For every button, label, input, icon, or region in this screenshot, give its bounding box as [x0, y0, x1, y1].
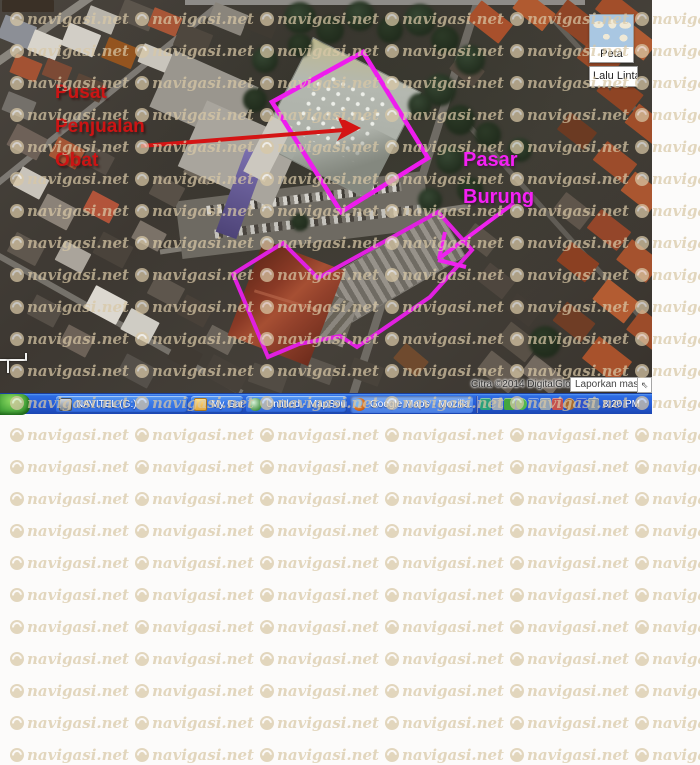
watermark: navigasi.net [385, 618, 504, 636]
watermark: navigasi.net [10, 650, 129, 668]
watermark: navigasi.net [10, 586, 129, 604]
taskbar-button-navitel[interactable]: NAVITEL (G:) [56, 396, 188, 413]
tray-icon-10[interactable] [588, 398, 599, 410]
watermark-logo-icon [385, 460, 399, 474]
watermark: navigasi.net [260, 522, 379, 540]
screenshot-region: Pusat Penjualan Obat Pasar Burung Peta L… [0, 0, 652, 414]
watermark-logo-icon [510, 620, 524, 634]
start-button[interactable] [0, 394, 30, 415]
watermark-text: navigasi.net [152, 714, 254, 732]
tray-icon-1[interactable] [480, 398, 491, 410]
scale-bar [25, 353, 27, 360]
watermark-text: navigasi.net [152, 650, 254, 668]
watermark-text: navigasi.net [27, 746, 129, 764]
watermark-logo-icon [10, 556, 24, 570]
watermark-text: navigasi.net [402, 426, 504, 444]
watermark: navigasi.net [260, 714, 379, 732]
annotation-overlay [0, 0, 652, 393]
watermark-logo-icon [10, 652, 24, 666]
watermark: navigasi.net [510, 682, 629, 700]
watermark-logo-icon [635, 524, 649, 538]
watermark-text: navigasi.net [527, 554, 629, 572]
watermark-text: navigasi.net [652, 330, 700, 348]
watermark-logo-icon [385, 716, 399, 730]
watermark-text: navigasi.net [27, 554, 129, 572]
watermark-logo-icon [635, 748, 649, 762]
drive-icon [59, 398, 72, 411]
watermark: navigasi.net [10, 426, 129, 444]
watermark-text: navigasi.net [27, 682, 129, 700]
taskbar-button-label: Google Maps - Mozilla... [370, 399, 473, 410]
watermark-text: navigasi.net [652, 458, 700, 476]
watermark-text: navigasi.net [652, 746, 700, 764]
watermark: navigasi.net [10, 522, 129, 540]
watermark: navigasi.net [635, 458, 700, 476]
watermark-logo-icon [510, 556, 524, 570]
watermark-logo-icon [385, 588, 399, 602]
watermark: navigasi.net [385, 746, 504, 764]
watermark-logo-icon [510, 588, 524, 602]
watermark-logo-icon [385, 748, 399, 762]
watermark: navigasi.net [260, 650, 379, 668]
watermark-logo-icon [635, 556, 649, 570]
watermark: navigasi.net [260, 586, 379, 604]
watermark-logo-icon [135, 428, 149, 442]
watermark-logo-icon [10, 524, 24, 538]
watermark-text: navigasi.net [652, 138, 700, 156]
watermark-text: navigasi.net [652, 554, 700, 572]
building-outline-2 [233, 212, 472, 357]
watermark-logo-icon [260, 748, 274, 762]
watermark: navigasi.net [385, 490, 504, 508]
watermark-logo-icon [385, 652, 399, 666]
taskbar-button-firefox[interactable]: Google Maps - Mozilla... [350, 396, 473, 413]
watermark-logo-icon [385, 556, 399, 570]
watermark-text: navigasi.net [527, 650, 629, 668]
watermark: navigasi.net [635, 490, 700, 508]
watermark-text: navigasi.net [652, 170, 700, 188]
watermark-logo-icon [510, 716, 524, 730]
watermark-logo-icon [510, 684, 524, 698]
red-arrow-shaft [141, 130, 344, 146]
watermark: navigasi.net [510, 714, 629, 732]
watermark: navigasi.net [635, 746, 700, 764]
watermark: navigasi.net [510, 522, 629, 540]
watermark-text: navigasi.net [402, 714, 504, 732]
tray-icon-9[interactable] [576, 398, 587, 410]
tray-icon-4[interactable] [516, 398, 527, 410]
watermark: navigasi.net [510, 586, 629, 604]
folder-icon [194, 398, 207, 411]
watermark: navigasi.net [510, 554, 629, 572]
tray-icon-6[interactable] [540, 398, 551, 410]
watermark: navigasi.net [135, 618, 254, 636]
watermark-logo-icon [260, 620, 274, 634]
watermark-logo-icon [385, 428, 399, 442]
watermark-text: navigasi.net [652, 394, 700, 412]
watermark-logo-icon [510, 748, 524, 762]
watermark-logo-icon [260, 684, 274, 698]
watermark: navigasi.net [635, 586, 700, 604]
watermark-text: navigasi.net [277, 426, 379, 444]
watermark: navigasi.net [385, 522, 504, 540]
watermark-text: navigasi.net [652, 650, 700, 668]
watermark-logo-icon [635, 460, 649, 474]
watermark-text: navigasi.net [527, 746, 629, 764]
watermark-logo-icon [10, 588, 24, 602]
watermark-logo-icon [260, 588, 274, 602]
watermark-logo-icon [135, 684, 149, 698]
watermark: navigasi.net [510, 650, 629, 668]
watermark-logo-icon [510, 652, 524, 666]
label-line: Penjualan [55, 110, 145, 144]
watermark-logo-icon [385, 524, 399, 538]
watermark-logo-icon [635, 428, 649, 442]
watermark-text: navigasi.net [402, 522, 504, 540]
watermark: navigasi.net [260, 458, 379, 476]
scale-bar [7, 360, 9, 373]
watermark: navigasi.net [635, 554, 700, 572]
watermark-text: navigasi.net [652, 426, 700, 444]
watermark-logo-icon [10, 492, 24, 506]
watermark: navigasi.net [260, 490, 379, 508]
watermark-text: navigasi.net [277, 618, 379, 636]
watermark-text: navigasi.net [277, 490, 379, 508]
map-type-label: Peta [590, 47, 633, 62]
watermark-text: navigasi.net [652, 10, 700, 28]
page: Pusat Penjualan Obat Pasar Burung Peta L… [0, 0, 700, 765]
watermark-text: navigasi.net [652, 298, 700, 316]
watermark: navigasi.net [10, 458, 129, 476]
watermark-text: navigasi.net [402, 490, 504, 508]
watermark: navigasi.net [135, 426, 254, 444]
watermark-logo-icon [135, 460, 149, 474]
watermark: navigasi.net [385, 650, 504, 668]
watermark-text: navigasi.net [402, 554, 504, 572]
watermark-text: navigasi.net [152, 458, 254, 476]
watermark-text: navigasi.net [527, 618, 629, 636]
watermark-text: navigasi.net [152, 618, 254, 636]
watermark: navigasi.net [135, 682, 254, 700]
watermark-logo-icon [135, 652, 149, 666]
watermark: navigasi.net [635, 650, 700, 668]
watermark: navigasi.net [135, 650, 254, 668]
watermark-text: navigasi.net [152, 554, 254, 572]
watermark-logo-icon [260, 556, 274, 570]
watermark-text: navigasi.net [527, 682, 629, 700]
watermark-logo-icon [135, 588, 149, 602]
watermark-text: navigasi.net [652, 490, 700, 508]
watermark-logo-icon [385, 492, 399, 506]
watermark-text: navigasi.net [652, 74, 700, 92]
taskbar-button-label: My Garmin [211, 399, 243, 410]
watermark-text: navigasi.net [652, 682, 700, 700]
watermark-logo-icon [135, 748, 149, 762]
watermark: navigasi.net [135, 714, 254, 732]
watermark-logo-icon [635, 716, 649, 730]
label-line: Obat [55, 144, 145, 178]
taskbar-button-my-garmin[interactable]: My Garmin [191, 396, 243, 413]
watermark-logo-icon [260, 652, 274, 666]
label-line: Pasar [463, 142, 534, 179]
watermark-text: navigasi.net [27, 618, 129, 636]
watermark: navigasi.net [510, 746, 629, 764]
taskbar-button-label: Untitled - MapSource [266, 399, 347, 410]
watermark-text: navigasi.net [27, 426, 129, 444]
firefox-icon [353, 398, 366, 411]
taskbar-clock: 8:20 PM [603, 394, 640, 415]
watermark: navigasi.net [385, 554, 504, 572]
watermark: navigasi.net [385, 426, 504, 444]
watermark-text: navigasi.net [277, 554, 379, 572]
watermark-text: navigasi.net [152, 522, 254, 540]
watermark-logo-icon [635, 620, 649, 634]
watermark-text: navigasi.net [402, 458, 504, 476]
globe-icon [249, 398, 262, 411]
watermark: navigasi.net [385, 714, 504, 732]
watermark-logo-icon [10, 620, 24, 634]
tray-icon-7[interactable] [552, 398, 563, 410]
taskbar-button-label: NAVITEL (G:) [76, 399, 137, 410]
watermark: navigasi.net [10, 714, 129, 732]
watermark-text: navigasi.net [402, 650, 504, 668]
watermark-text: navigasi.net [27, 586, 129, 604]
watermark-logo-icon [385, 684, 399, 698]
map-shortcut-button[interactable]: ⇖ [637, 377, 652, 393]
watermark: navigasi.net [635, 618, 700, 636]
watermark-logo-icon [385, 620, 399, 634]
watermark-logo-icon [510, 460, 524, 474]
label-pusat-penjualan-obat: Pusat Penjualan Obat [55, 76, 145, 178]
watermark-logo-icon [260, 492, 274, 506]
watermark-text: navigasi.net [27, 522, 129, 540]
watermark: navigasi.net [135, 458, 254, 476]
watermark-logo-icon [635, 588, 649, 602]
watermark-logo-icon [135, 556, 149, 570]
watermark-text: navigasi.net [652, 586, 700, 604]
watermark: navigasi.net [385, 458, 504, 476]
watermark-text: navigasi.net [527, 522, 629, 540]
watermark: navigasi.net [260, 426, 379, 444]
watermark: navigasi.net [10, 490, 129, 508]
tray-icon-5[interactable] [528, 398, 539, 410]
watermark: navigasi.net [10, 746, 129, 764]
watermark-text: navigasi.net [527, 586, 629, 604]
watermark-logo-icon [510, 492, 524, 506]
watermark-text: navigasi.net [277, 746, 379, 764]
tray-icon-3[interactable] [504, 398, 515, 410]
watermark-text: navigasi.net [152, 426, 254, 444]
watermark-text: navigasi.net [277, 586, 379, 604]
watermark-text: navigasi.net [27, 490, 129, 508]
watermark-logo-icon [135, 524, 149, 538]
watermark: navigasi.net [510, 426, 629, 444]
satellite-map[interactable]: Pusat Penjualan Obat Pasar Burung Peta L… [0, 0, 652, 393]
watermark: navigasi.net [10, 618, 129, 636]
watermark-text: navigasi.net [402, 618, 504, 636]
watermark-text: navigasi.net [652, 106, 700, 124]
watermark: navigasi.net [10, 682, 129, 700]
watermark-text: navigasi.net [652, 618, 700, 636]
watermark-logo-icon [510, 524, 524, 538]
label-pasar-burung: Pasar Burung [463, 142, 534, 216]
watermark-logo-icon [260, 428, 274, 442]
watermark-logo-icon [135, 492, 149, 506]
tray-divider [476, 396, 478, 413]
watermark-text: navigasi.net [527, 426, 629, 444]
watermark-text: navigasi.net [652, 42, 700, 60]
watermark-text: navigasi.net [652, 234, 700, 252]
watermark: navigasi.net [260, 554, 379, 572]
watermark-text: navigasi.net [27, 650, 129, 668]
watermark-text: navigasi.net [277, 682, 379, 700]
watermark: navigasi.net [260, 618, 379, 636]
watermark: navigasi.net [260, 746, 379, 764]
watermark-logo-icon [135, 716, 149, 730]
scale-bar [0, 359, 27, 361]
watermark-text: navigasi.net [277, 714, 379, 732]
watermark: navigasi.net [510, 490, 629, 508]
watermark-text: navigasi.net [652, 202, 700, 220]
chevron-down-icon[interactable]: ▼ [606, 84, 614, 93]
watermark: navigasi.net [635, 682, 700, 700]
watermark: navigasi.net [10, 554, 129, 572]
watermark: navigasi.net [385, 682, 504, 700]
watermark: navigasi.net [135, 586, 254, 604]
taskbar-button-mapsource[interactable]: Untitled - MapSource [246, 396, 347, 413]
watermark-text: navigasi.net [527, 714, 629, 732]
tray-icon-2[interactable] [492, 398, 503, 410]
watermark-text: navigasi.net [527, 490, 629, 508]
watermark-text: navigasi.net [402, 746, 504, 764]
watermark-logo-icon [10, 716, 24, 730]
watermark: navigasi.net [635, 426, 700, 444]
watermark: navigasi.net [135, 490, 254, 508]
watermark-text: navigasi.net [527, 458, 629, 476]
watermark-text: navigasi.net [402, 586, 504, 604]
label-line: Burung [463, 179, 534, 216]
watermark: navigasi.net [510, 618, 629, 636]
watermark-text: navigasi.net [277, 458, 379, 476]
watermark-text: navigasi.net [277, 522, 379, 540]
watermark-logo-icon [635, 684, 649, 698]
watermark: navigasi.net [135, 522, 254, 540]
watermark-logo-icon [510, 428, 524, 442]
watermark-text: navigasi.net [152, 490, 254, 508]
watermark-text: navigasi.net [27, 458, 129, 476]
watermark-logo-icon [260, 524, 274, 538]
watermark: navigasi.net [510, 458, 629, 476]
watermark-text: navigasi.net [402, 682, 504, 700]
map-thumbnail-icon [590, 15, 633, 47]
system-tray [480, 398, 599, 411]
watermark: navigasi.net [385, 586, 504, 604]
watermark-logo-icon [635, 652, 649, 666]
watermark-logo-icon [135, 620, 149, 634]
watermark-logo-icon [10, 428, 24, 442]
watermark-text: navigasi.net [152, 586, 254, 604]
watermark-logo-icon [260, 460, 274, 474]
watermark: navigasi.net [260, 682, 379, 700]
watermark-logo-icon [10, 684, 24, 698]
watermark-text: navigasi.net [152, 682, 254, 700]
watermark: navigasi.net [635, 714, 700, 732]
map-type-button[interactable]: Peta [589, 14, 634, 63]
watermark-text: navigasi.net [277, 650, 379, 668]
watermark-logo-icon [10, 748, 24, 762]
watermark: navigasi.net [635, 522, 700, 540]
watermark-logo-icon [635, 492, 649, 506]
taskbar: NAVITEL (G:) My Garmin Untitled - MapSou… [0, 393, 652, 414]
watermark-text: navigasi.net [152, 746, 254, 764]
label-line: Pusat [55, 76, 145, 110]
watermark-text: navigasi.net [27, 714, 129, 732]
watermark-logo-icon [10, 460, 24, 474]
watermark-logo-icon [260, 716, 274, 730]
watermark-text: navigasi.net [652, 714, 700, 732]
watermark: navigasi.net [135, 554, 254, 572]
watermark-text: navigasi.net [652, 522, 700, 540]
watermark-text: navigasi.net [652, 266, 700, 284]
watermark: navigasi.net [135, 746, 254, 764]
tray-icon-8[interactable] [564, 398, 575, 410]
watermark-text: navigasi.net [652, 362, 700, 380]
